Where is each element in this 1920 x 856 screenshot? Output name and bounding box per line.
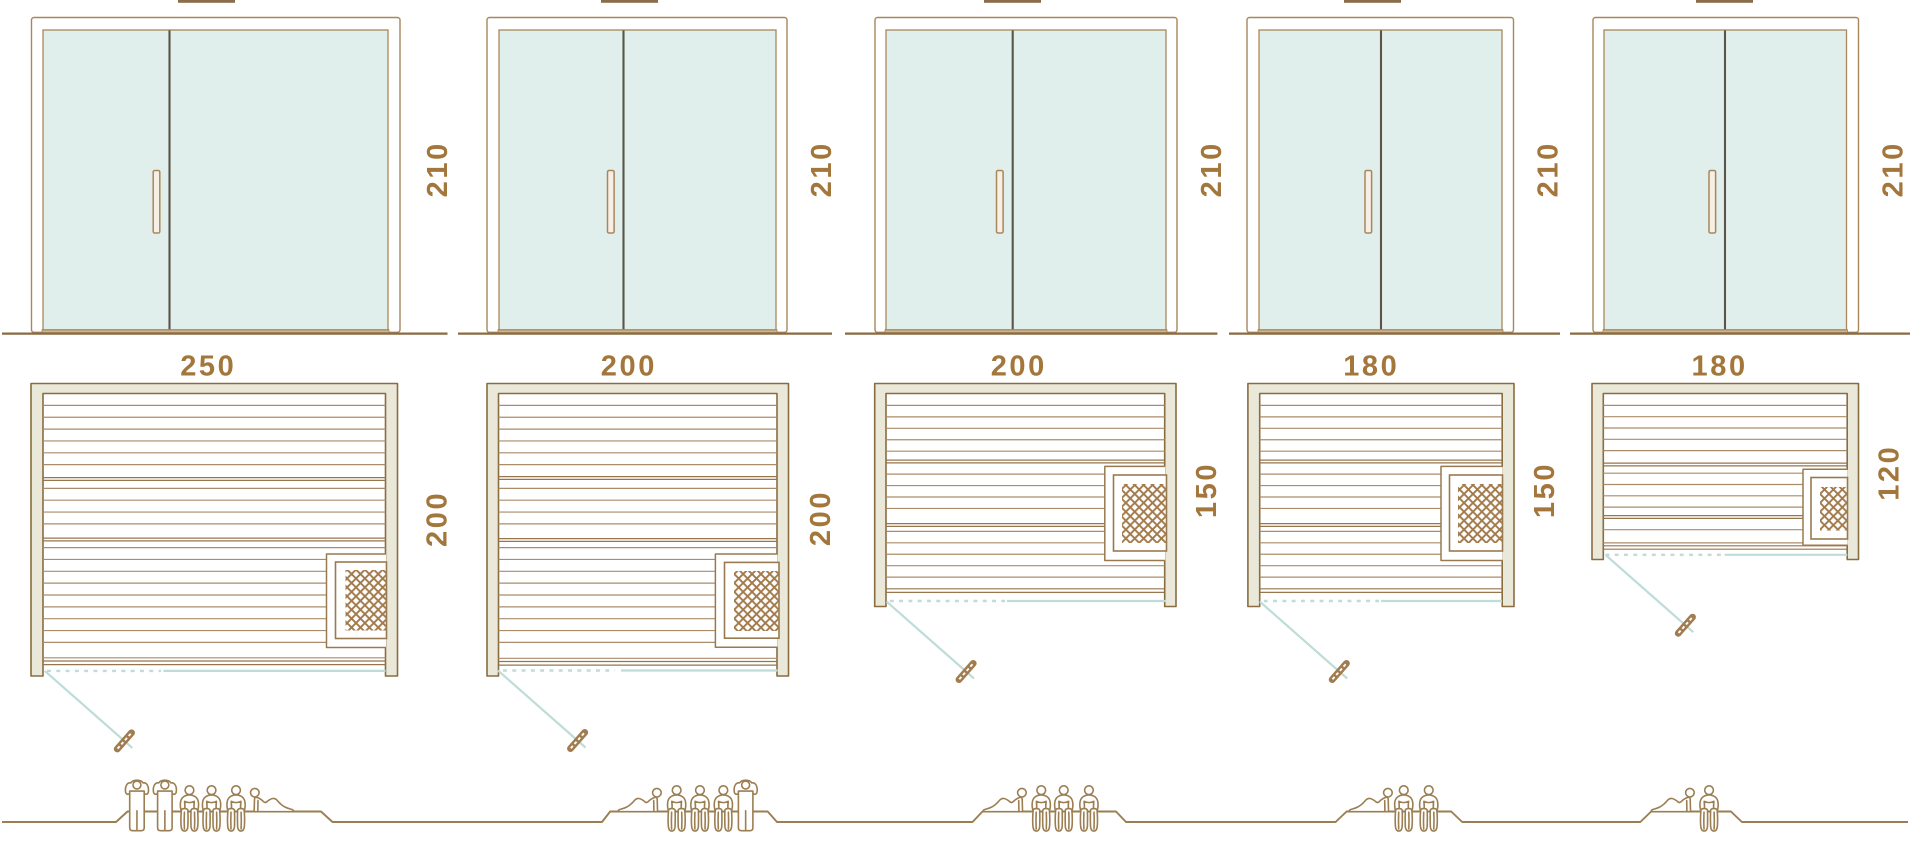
svg-text:210: 210 xyxy=(806,141,838,197)
svg-text:150: 150 xyxy=(1191,462,1223,518)
svg-text:200: 200 xyxy=(805,490,837,546)
svg-text:210: 210 xyxy=(422,141,454,197)
svg-text:210: 210 xyxy=(1196,141,1228,197)
svg-text:120: 120 xyxy=(1874,445,1906,501)
svg-text:150: 150 xyxy=(1529,462,1561,518)
svg-text:250: 250 xyxy=(180,350,236,382)
svg-text:180: 180 xyxy=(1692,350,1748,382)
svg-text:210: 210 xyxy=(1533,141,1565,197)
svg-text:200: 200 xyxy=(601,350,657,382)
svg-text:180: 180 xyxy=(1343,350,1399,382)
svg-text:200: 200 xyxy=(991,350,1047,382)
svg-text:200: 200 xyxy=(421,491,453,547)
svg-text:210: 210 xyxy=(1878,141,1910,197)
